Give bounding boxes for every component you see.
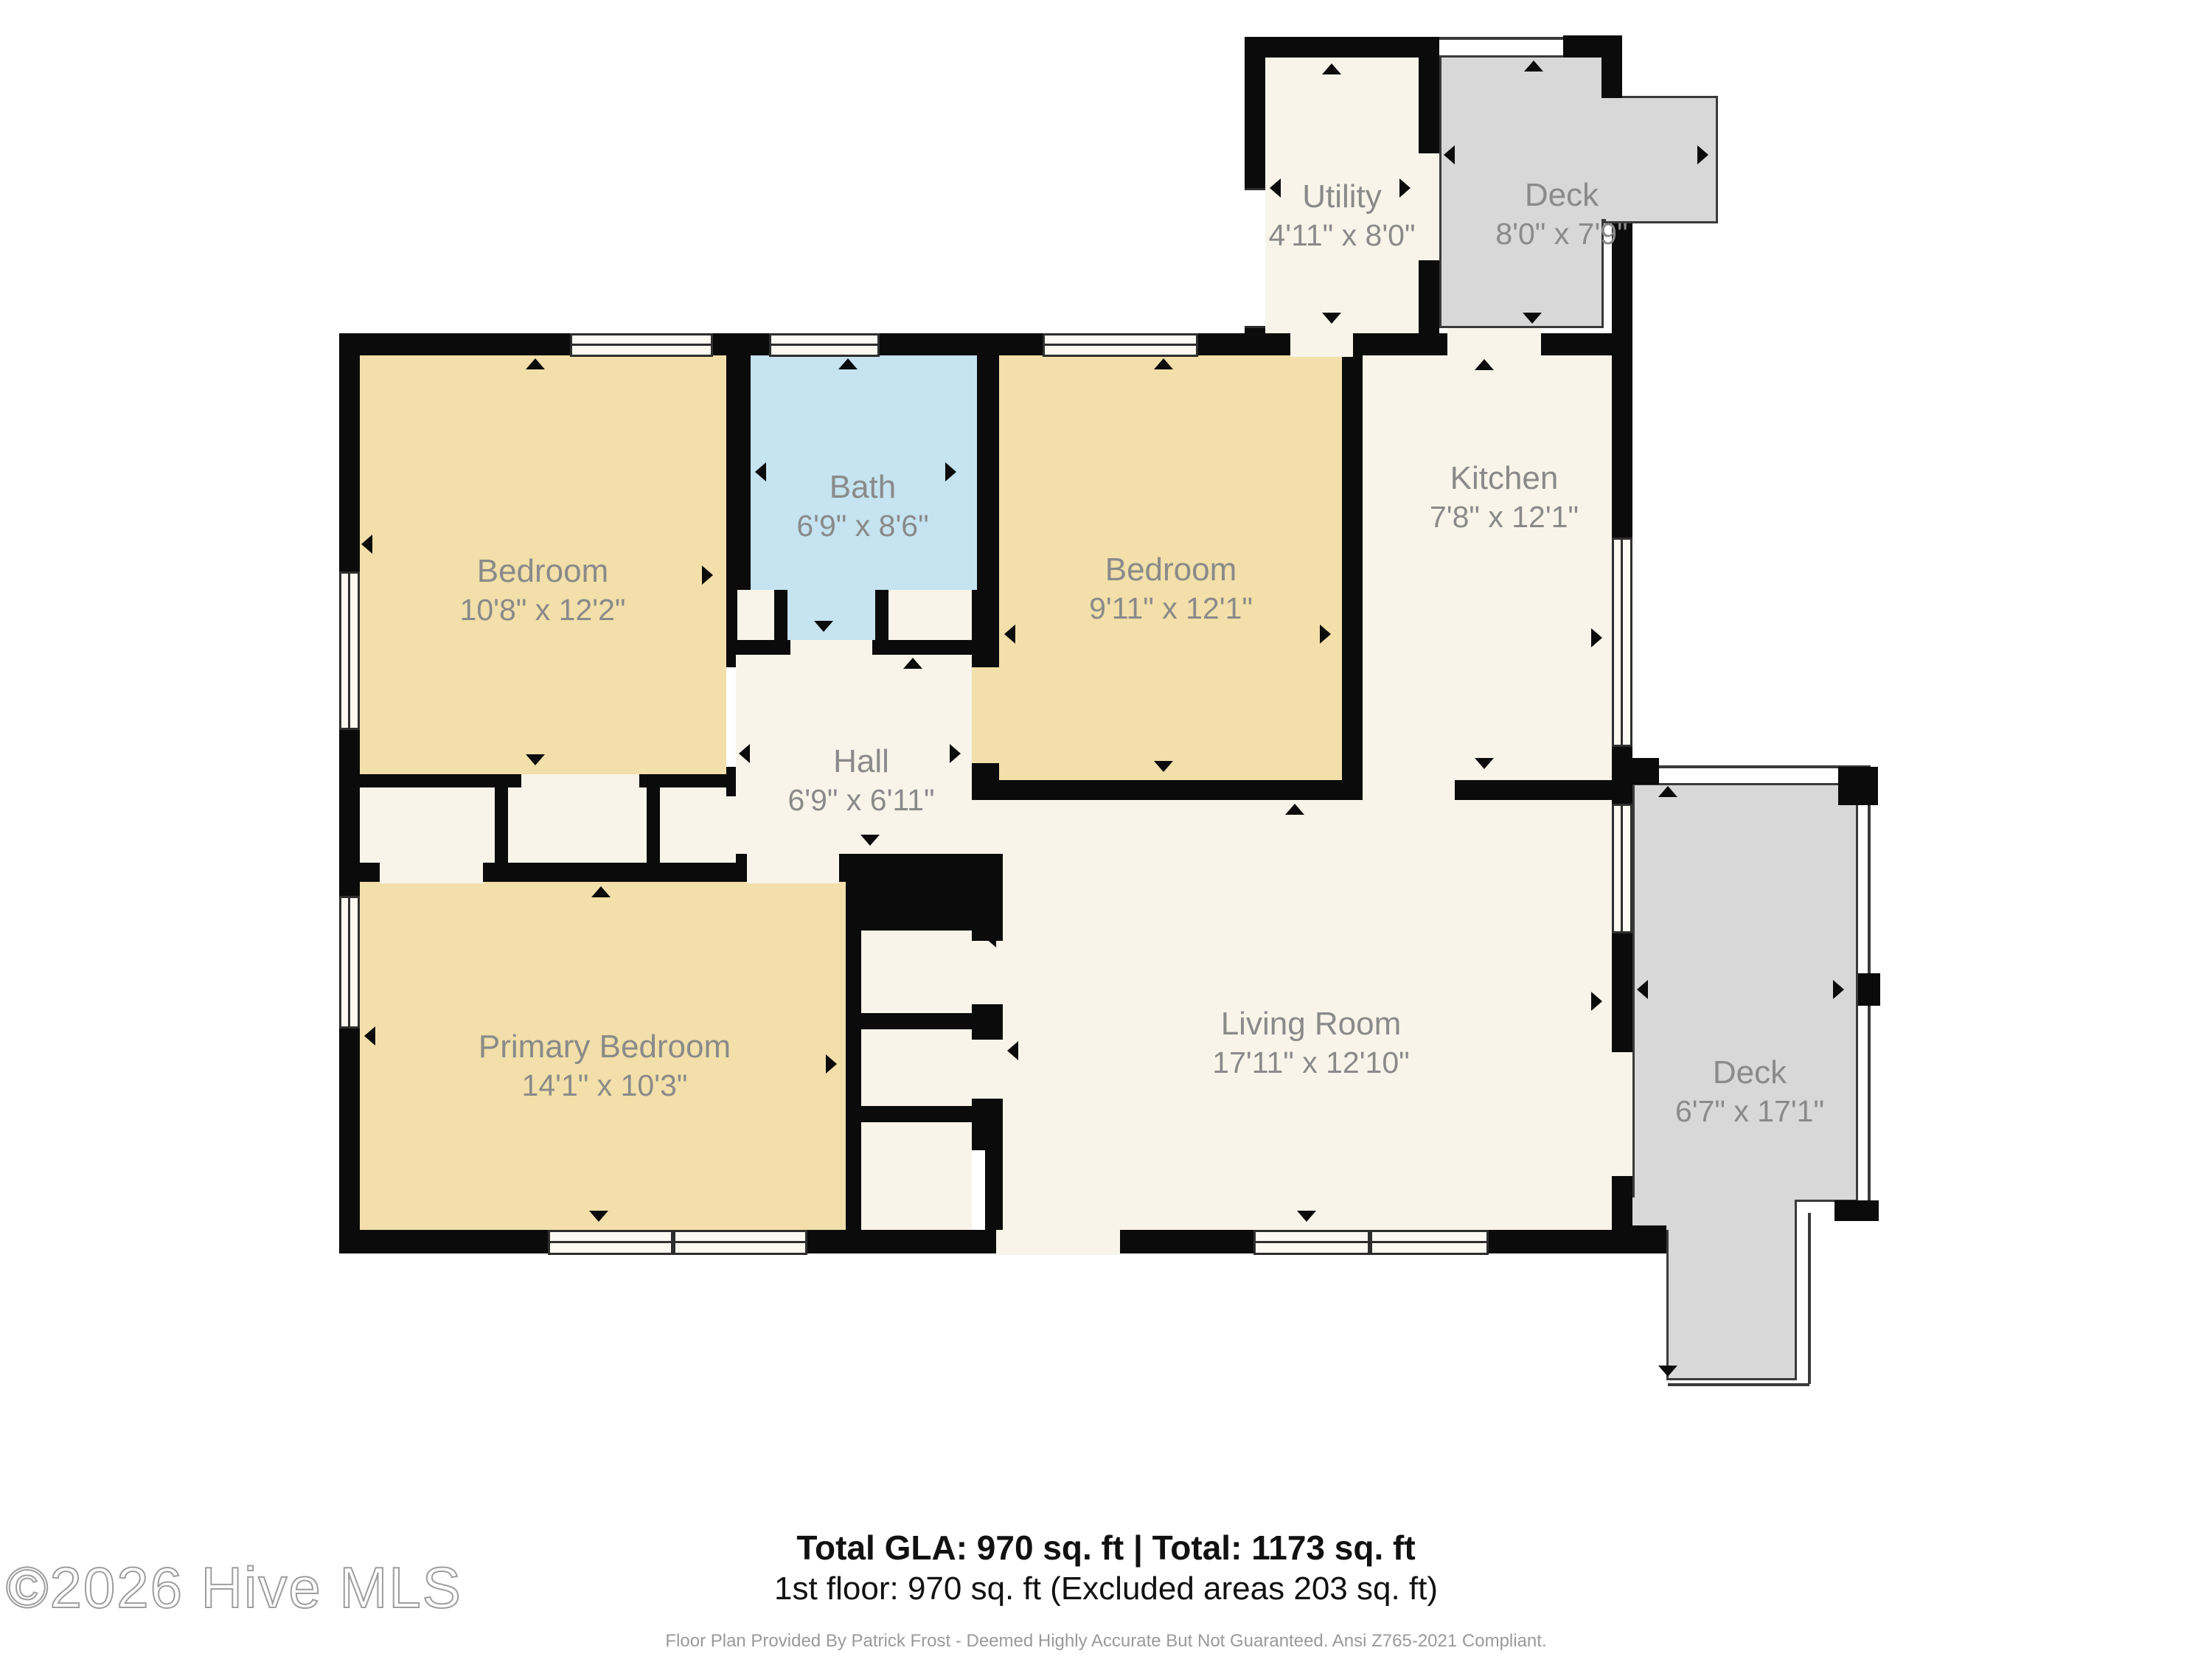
closet-left-floor	[360, 787, 495, 863]
entry-closet-a-floor	[861, 931, 972, 1013]
closet-left-door	[380, 863, 483, 883]
bottom-wall-stub	[1632, 1225, 1666, 1253]
measure-arrow-up	[838, 358, 858, 369]
measure-arrow-down	[1475, 758, 1494, 769]
measure-arrow-down	[1154, 761, 1173, 772]
measure-arrow-left	[755, 462, 766, 481]
window-living-right	[1612, 804, 1632, 933]
room-dims: 6'9" x 6'11"	[787, 782, 934, 819]
window-bedroom1-left	[339, 571, 360, 730]
room-label-bedroom1: Bedroom 10'8" x 12'2"	[460, 551, 626, 629]
kitchen-living-opening	[1363, 780, 1455, 801]
room-dims: 6'9" x 8'6"	[796, 507, 928, 545]
window-primary-bottom-1	[548, 1230, 673, 1255]
measure-arrow-down	[1658, 1366, 1677, 1377]
bath-door	[790, 640, 872, 656]
measure-arrow-right	[1591, 628, 1602, 647]
room-label-deck-right: Deck 6'7" x 17'1"	[1675, 1052, 1824, 1130]
measure-arrow-up	[1475, 359, 1494, 370]
room-dims: 4'11" x 8'0"	[1268, 217, 1415, 254]
mls-watermark: ©2026 Hive MLS	[6, 1554, 462, 1621]
measure-arrow-up	[1285, 804, 1304, 815]
disclaimer-text: Floor Plan Provided By Patrick Frost - D…	[0, 1631, 2212, 1652]
measure-arrow-up	[526, 358, 545, 369]
measure-arrow-left	[364, 1026, 375, 1046]
measure-arrow-right	[1697, 145, 1708, 164]
measure-arrow-down	[1322, 313, 1341, 324]
room-label-bedroom2: Bedroom 9'11" x 12'1"	[1089, 549, 1253, 627]
window-living-bottom-2	[1370, 1230, 1489, 1255]
measure-arrow-down	[860, 835, 880, 846]
living-deck-door	[1612, 1052, 1632, 1176]
room-dims: 10'8" x 12'2"	[460, 591, 626, 629]
bath-nook-right	[888, 590, 972, 640]
measure-arrow-left	[1007, 1041, 1018, 1060]
measure-arrow-up	[903, 658, 922, 669]
floor-plan-page: Utility 4'11" x 8'0" Deck 8'0" x 7'9" Be…	[0, 0, 2212, 1659]
measure-arrow-down	[589, 1211, 608, 1222]
closet-middle-floor	[508, 787, 647, 863]
room-name: Living Room	[1212, 1004, 1409, 1044]
room-label-living-room: Living Room 17'11" x 12'10"	[1212, 1004, 1409, 1082]
room-name: Primary Bedroom	[479, 1026, 731, 1067]
measure-arrow-down	[1523, 313, 1542, 324]
right-deck-seam2	[1668, 1197, 1795, 1205]
measure-arrow-left	[985, 928, 996, 947]
room-dims: 6'7" x 17'1"	[1675, 1093, 1824, 1130]
measure-arrow-up	[591, 886, 611, 897]
measure-arrow-right	[945, 462, 956, 481]
top-deck-railing	[1439, 37, 1565, 40]
room-name: Utility	[1268, 176, 1415, 217]
room-dims: 14'1" x 10'3"	[479, 1067, 731, 1105]
hall-primary-door	[747, 854, 839, 883]
measure-arrow-right	[1591, 992, 1602, 1011]
front-entry-opening	[996, 1230, 1120, 1255]
right-deck-post-topright	[1838, 767, 1878, 805]
room-name: Deck	[1675, 1052, 1824, 1093]
kitchen-floor	[1363, 355, 1612, 780]
utility-exterior-door	[1245, 188, 1265, 328]
entry-closet-b-floor	[861, 1029, 972, 1106]
bath-floor-narrow	[787, 590, 875, 640]
closet-middle-door	[521, 774, 639, 789]
right-deck-surface	[1632, 783, 1858, 1202]
room-name: Bedroom	[460, 551, 626, 591]
measure-arrow-up	[1154, 358, 1173, 369]
measure-arrow-left	[1444, 145, 1455, 164]
measure-arrow-left	[1004, 625, 1015, 644]
room-dims: 9'11" x 12'1"	[1089, 590, 1253, 627]
bedroom1-door	[726, 667, 736, 767]
measure-arrow-up	[1524, 60, 1543, 72]
room-dims: 8'0" x 7'9"	[1495, 215, 1627, 253]
room-label-utility: Utility 4'11" x 8'0"	[1268, 176, 1415, 254]
room-dims: 17'11" x 12'10"	[1212, 1044, 1409, 1082]
room-label-hall: Hall 6'9" x 6'11"	[787, 741, 934, 819]
window-primary-left	[339, 896, 360, 1029]
right-deck-post-midright	[1858, 973, 1880, 1006]
entry-closet-a-door	[972, 941, 1003, 1004]
entry-closet-b-door	[972, 1040, 1003, 1099]
room-name: Kitchen	[1430, 458, 1579, 498]
bedroom2-door	[972, 667, 999, 763]
measure-arrow-right	[1833, 980, 1844, 999]
room-name: Deck	[1495, 175, 1627, 215]
right-deck-railing-bottom	[1668, 1383, 1809, 1386]
right-deck-railing-top	[1649, 765, 1868, 768]
window-kitchen-right	[1612, 538, 1632, 747]
room-label-primary-bedroom: Primary Bedroom 14'1" x 10'3"	[479, 1026, 731, 1105]
window-bedroom1-top	[570, 333, 713, 357]
measure-arrow-right	[826, 1054, 837, 1074]
closet-right-door	[726, 796, 736, 863]
measure-arrow-up	[1658, 786, 1677, 797]
right-deck-post-notch	[1834, 1200, 1879, 1221]
measure-arrow-left	[361, 535, 372, 554]
room-dims: 7'8" x 12'1"	[1430, 498, 1579, 536]
room-name: Hall	[787, 741, 934, 782]
room-label-deck-top: Deck 8'0" x 7'9"	[1495, 175, 1627, 253]
deck-kitchen-door	[1447, 328, 1541, 357]
measure-arrow-left	[1637, 980, 1648, 999]
measure-arrow-right	[702, 566, 713, 585]
window-living-bottom-1	[1253, 1230, 1370, 1255]
measure-arrow-right	[950, 744, 961, 763]
window-bath-top	[769, 333, 880, 357]
measure-arrow-down	[1297, 1211, 1316, 1222]
measure-arrow-down	[526, 754, 545, 765]
window-bedroom2-top	[1043, 333, 1198, 357]
closet-right-floor	[660, 787, 726, 863]
right-deck-railing-notch	[1808, 1213, 1811, 1384]
bath-nook-left	[737, 590, 774, 640]
top-deck-corner-post	[1601, 35, 1622, 98]
room-name: Bath	[796, 467, 928, 507]
measure-arrow-down	[814, 621, 833, 632]
hall-living-passage	[972, 800, 1003, 854]
utility-deck-door	[1419, 153, 1439, 260]
room-name: Bedroom	[1089, 549, 1253, 590]
entry-vestibule-floor	[861, 1122, 972, 1230]
utility-kitchen-door	[1290, 333, 1353, 357]
room-label-bath: Bath 6'9" x 8'6"	[796, 467, 928, 545]
measure-arrow-left	[739, 744, 750, 763]
measure-arrow-right	[1320, 625, 1331, 644]
measure-arrow-up	[1322, 63, 1341, 74]
window-primary-bottom-2	[673, 1230, 807, 1255]
room-label-kitchen: Kitchen 7'8" x 12'1"	[1430, 458, 1579, 536]
vestibule-side-door	[972, 1150, 985, 1230]
right-deck-extension	[1666, 1202, 1797, 1380]
